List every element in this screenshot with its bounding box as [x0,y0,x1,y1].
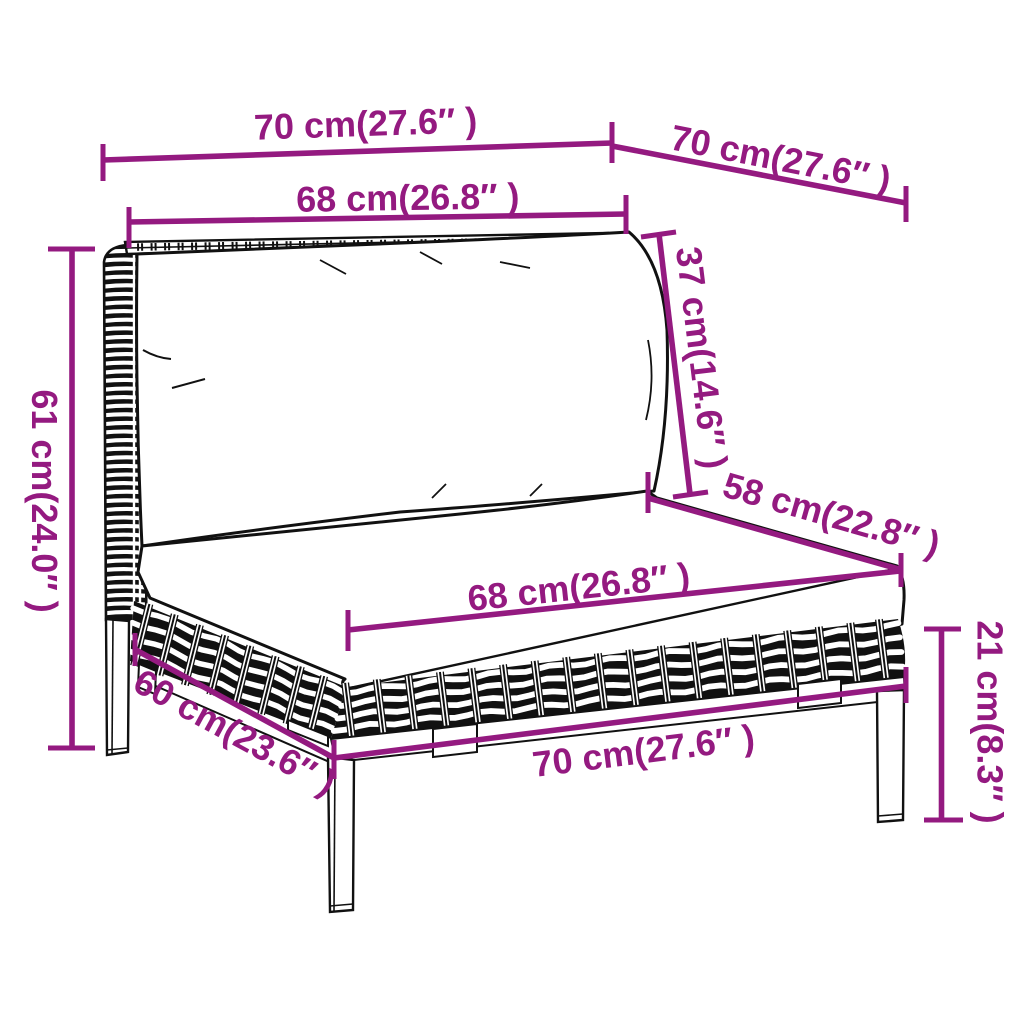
svg-text:61 cm(24.0″ ): 61 cm(24.0″ ) [24,389,65,612]
svg-text:70 cm(27.6″ ): 70 cm(27.6″ ) [253,99,478,147]
svg-text:21 cm(8.3″ ): 21 cm(8.3″ ) [970,620,1011,823]
svg-text:68 cm(26.8″ ): 68 cm(26.8″ ) [296,175,520,220]
